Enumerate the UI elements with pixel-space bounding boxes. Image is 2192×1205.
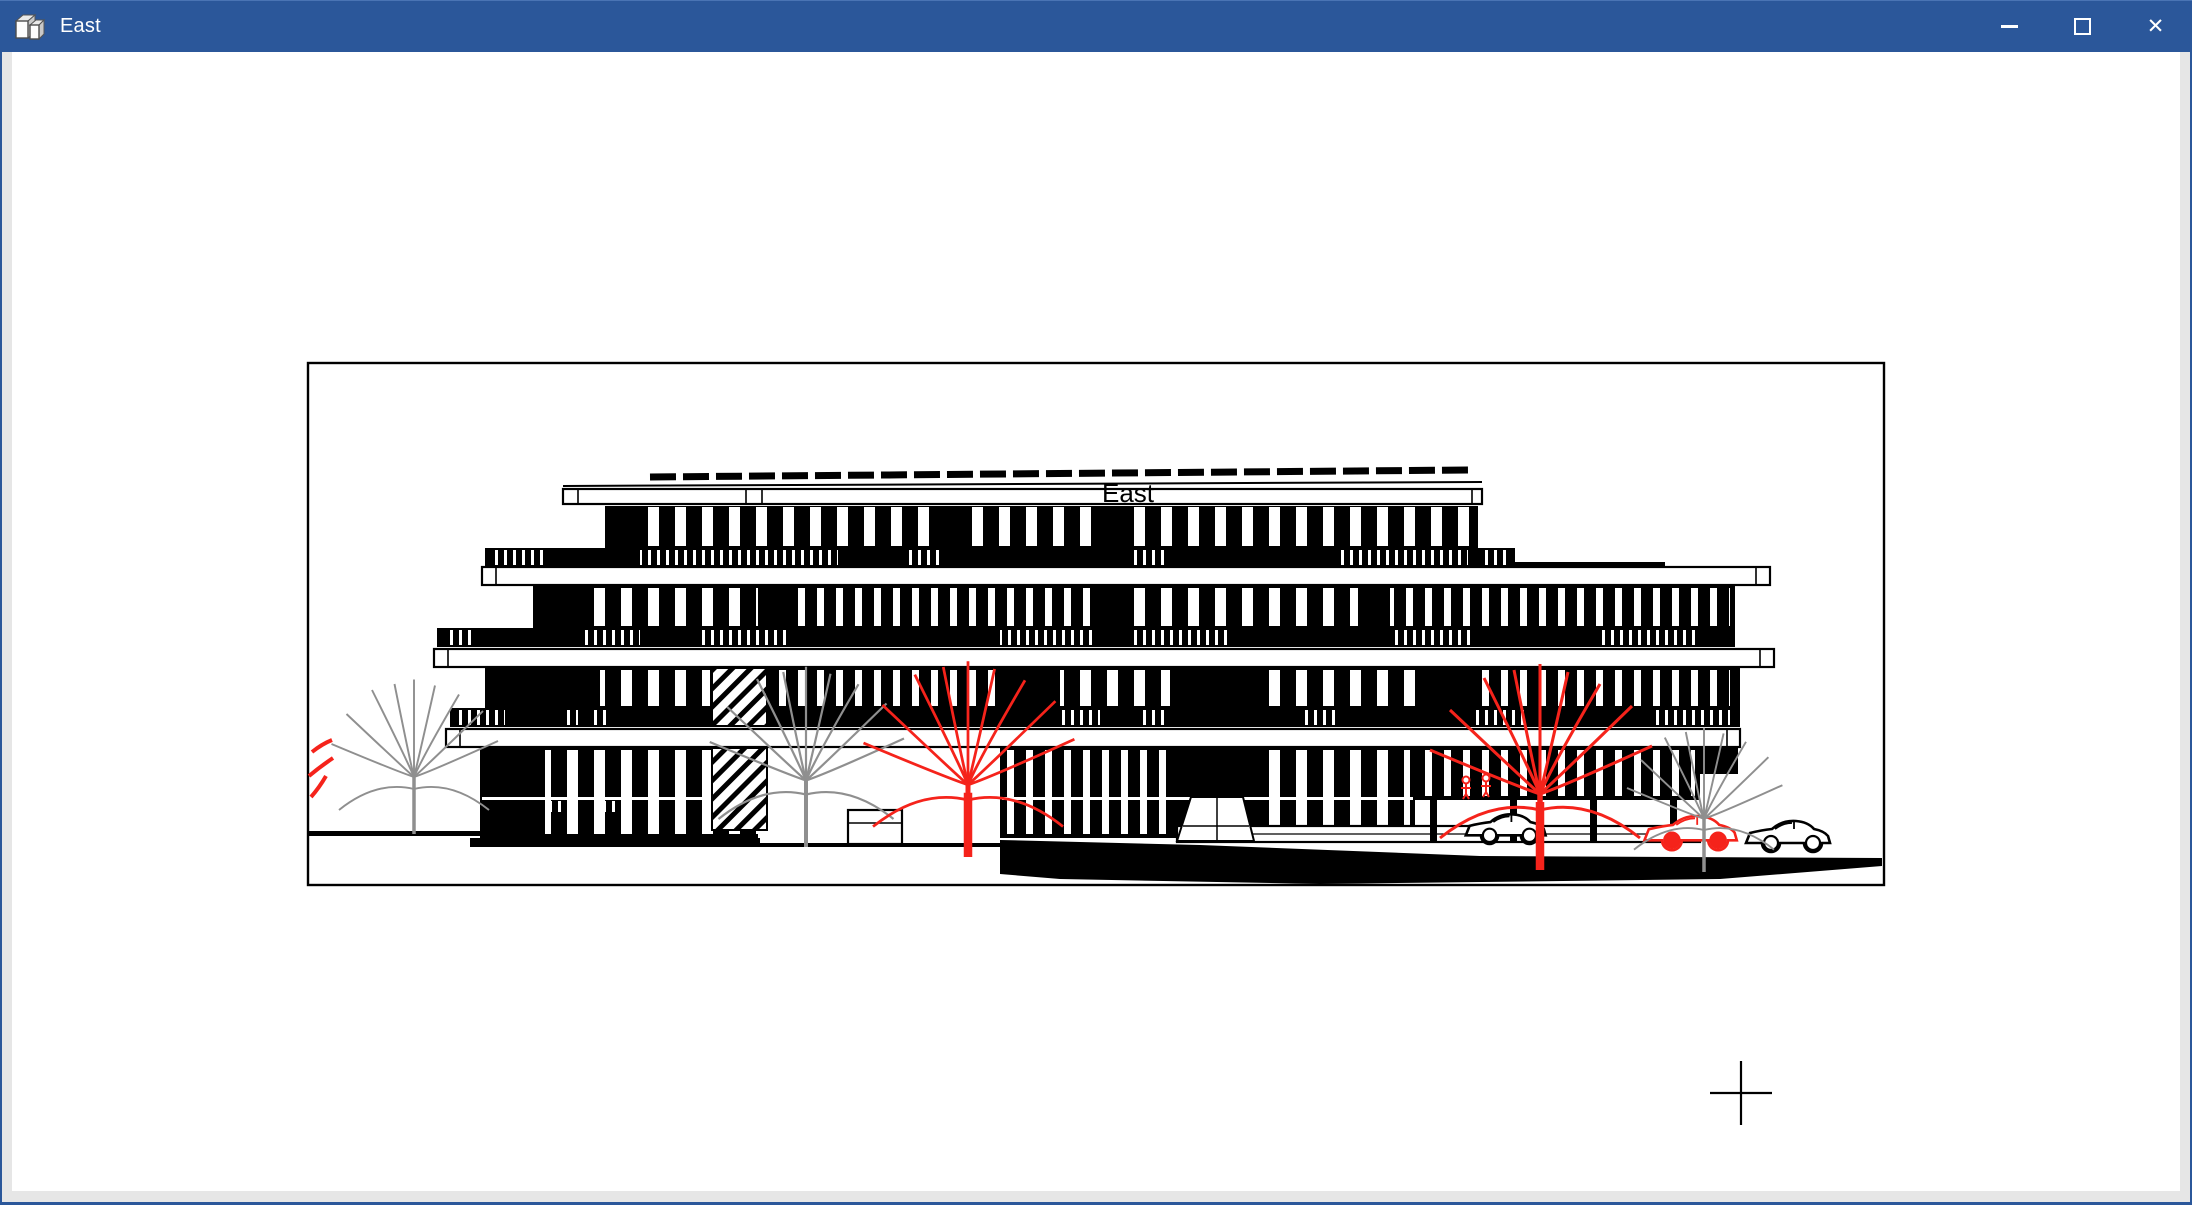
parked-cars: [1466, 814, 1830, 852]
car: [1746, 821, 1830, 852]
elevation-drawing[interactable]: East: [0, 52, 2192, 1205]
roof-fascia: [563, 489, 1482, 504]
slab-4: [482, 567, 1770, 585]
minimize-icon: [2001, 25, 2018, 28]
app-window: East ✕: [0, 0, 2192, 1205]
close-icon: ✕: [2147, 16, 2165, 37]
window-controls: ✕: [1973, 1, 2192, 52]
slab-3: [434, 649, 1774, 667]
gray-tree: [332, 680, 499, 835]
maximize-icon: [2074, 18, 2091, 35]
close-button[interactable]: ✕: [2119, 1, 2192, 52]
red-car: [1644, 816, 1736, 850]
elevation-view-icon: [13, 12, 47, 42]
window-title: East: [60, 15, 101, 38]
ground-line-left: [308, 831, 482, 836]
solar-panel-row: [650, 470, 1470, 477]
view-label: East: [1102, 478, 1155, 508]
roof-edge-line: [563, 482, 1482, 486]
maximize-button[interactable]: [2046, 1, 2119, 52]
tree-fragment-red: [312, 740, 332, 752]
titlebar[interactable]: East ✕: [0, 0, 2192, 52]
minimize-button[interactable]: [1973, 1, 2046, 52]
plaza-kiosk: [848, 810, 902, 844]
slab-2: [446, 729, 1740, 747]
building-elevation: East: [308, 470, 1882, 884]
entrance-canopy: [1177, 797, 1254, 841]
terrain-ground: [1000, 840, 1882, 884]
crosshair-cursor: [1710, 1061, 1772, 1125]
